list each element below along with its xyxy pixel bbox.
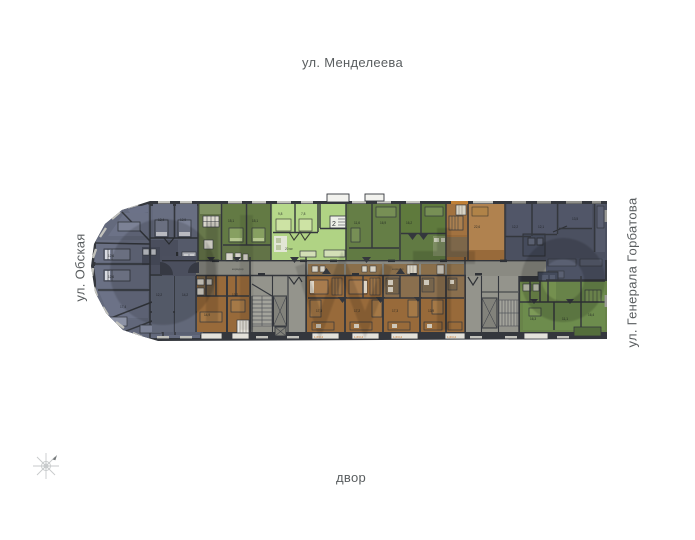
svg-text:11,6: 11,6 <box>354 221 360 225</box>
svg-text:коридор: коридор <box>392 267 404 271</box>
svg-text:13,5: 13,5 <box>572 217 578 221</box>
svg-text:12,1: 12,1 <box>538 225 544 229</box>
svg-text:17,3: 17,3 <box>392 309 398 313</box>
svg-text:7,8: 7,8 <box>301 212 306 216</box>
svg-text:15,1: 15,1 <box>228 219 234 223</box>
svg-text:16,2: 16,2 <box>406 221 412 225</box>
svg-text:16,9: 16,9 <box>380 221 386 225</box>
svg-text:13,9: 13,9 <box>428 309 434 313</box>
svg-text:1,6/3,2: 1,6/3,2 <box>393 335 403 339</box>
svg-text:16,4: 16,4 <box>588 313 594 317</box>
svg-text:12,9: 12,9 <box>180 218 186 222</box>
svg-text:2: 2 <box>332 221 336 228</box>
svg-text:20 м²: 20 м² <box>285 247 293 251</box>
svg-text:1,6/3,2: 1,6/3,2 <box>447 335 457 339</box>
svg-text:12,2: 12,2 <box>512 225 518 229</box>
svg-text:22,6: 22,6 <box>474 225 480 229</box>
svg-text:16,3: 16,3 <box>530 317 536 321</box>
svg-text:9,8: 9,8 <box>278 212 283 216</box>
svg-text:13,2: 13,2 <box>232 293 238 297</box>
svg-text:1,6/3,2: 1,6/3,2 <box>354 335 364 339</box>
